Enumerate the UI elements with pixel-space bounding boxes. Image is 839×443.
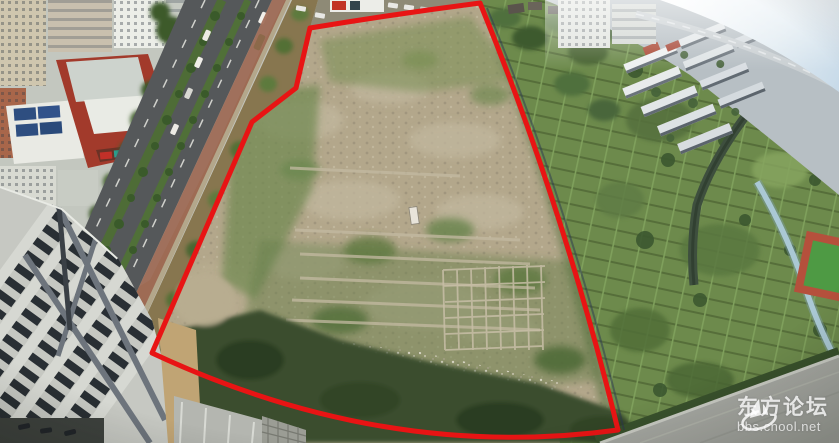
aerial-photo-canvas xyxy=(0,0,839,443)
aerial-photo: 东方论坛 bbs.cnool.net xyxy=(0,0,839,443)
vignette xyxy=(0,0,839,443)
